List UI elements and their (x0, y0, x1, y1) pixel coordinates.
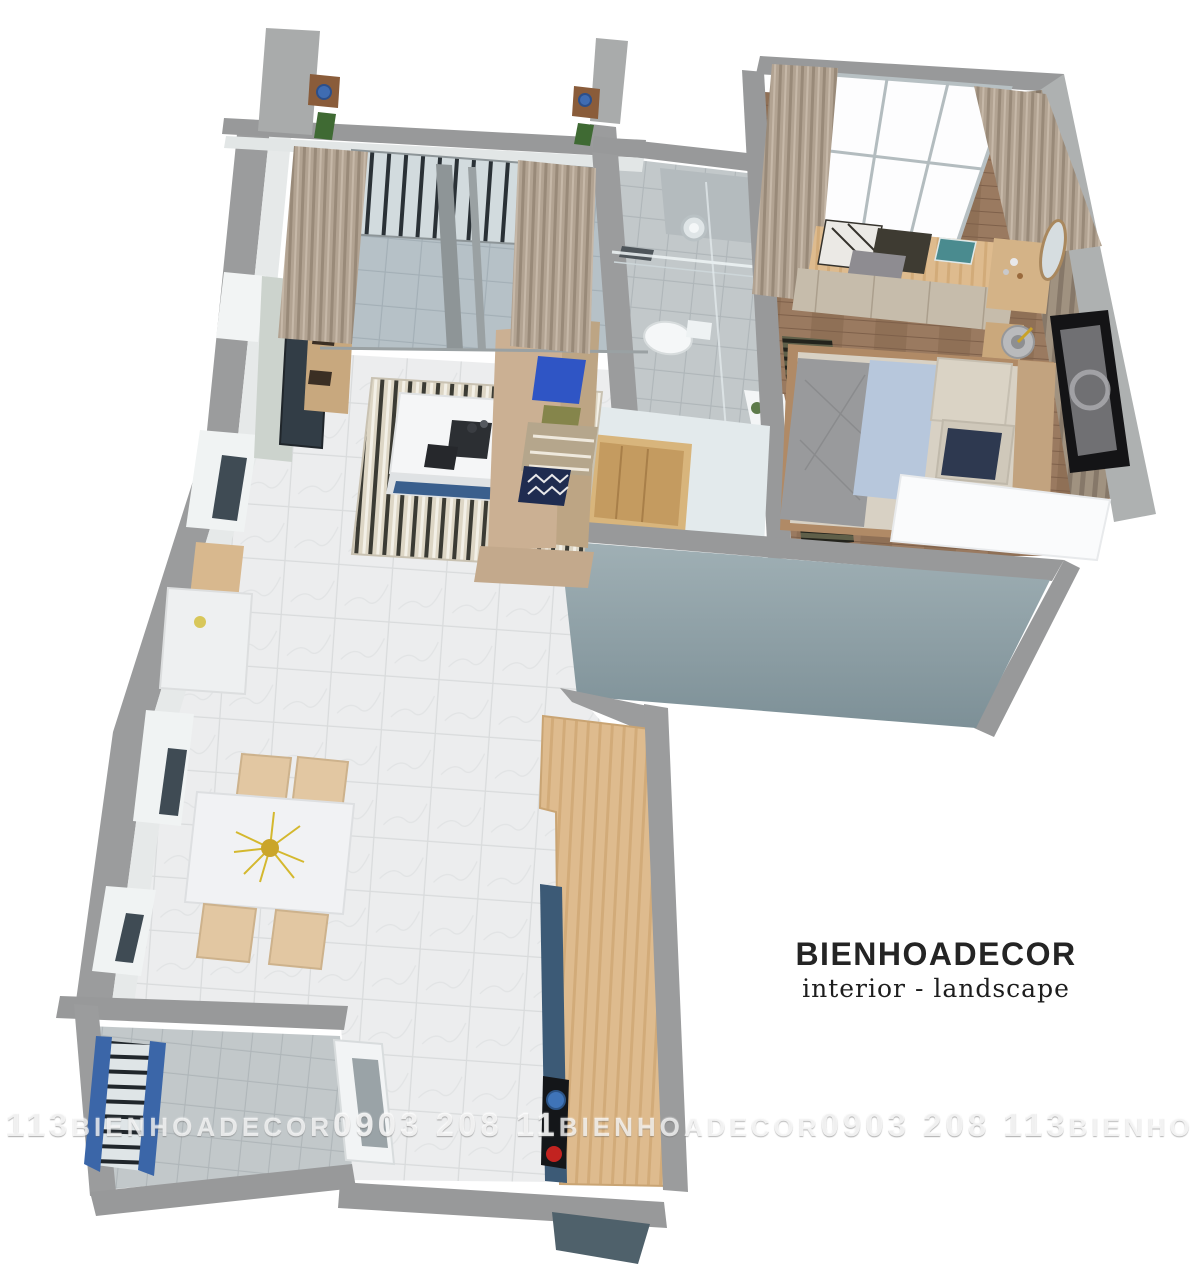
watermark-segment: BIENHOADECOR (71, 1112, 333, 1143)
shelf-slot (308, 370, 332, 386)
bed-pillow-1 (931, 358, 1012, 426)
nook-plant (194, 616, 206, 628)
bedside-lamp (1002, 326, 1034, 358)
pillow-blue (532, 356, 586, 404)
toilet-tank (686, 320, 712, 340)
flower-center (261, 839, 279, 857)
nook-table (160, 588, 252, 694)
watermark-segment: BIENHOADECOR (559, 1112, 821, 1143)
bedroom (742, 56, 1156, 560)
wall-stub-left (258, 28, 340, 140)
watermark-segment: BIENHOADECOR (1069, 1112, 1191, 1143)
watermark-segment: 0903 208 11 (333, 1106, 559, 1144)
brand-name: BIENHOADECOR (770, 938, 1102, 972)
mirror-center (689, 223, 699, 233)
watermark-segment: 0903 208 113 (821, 1106, 1069, 1144)
bottle (480, 420, 488, 428)
cosmetic-bottle (1003, 269, 1009, 275)
blue-pot (317, 85, 331, 99)
dining-chair (269, 910, 328, 969)
dining-chair (197, 904, 256, 962)
blue-pot (579, 94, 591, 106)
bed-pillow-navy (941, 428, 1002, 480)
brand-logo: BIENHOADECOR interior - landscape (770, 938, 1102, 1003)
wood-door (594, 442, 684, 526)
floor-plan-render (0, 0, 1191, 1280)
bottle (467, 423, 477, 433)
watermark-segment: 113 (6, 1106, 71, 1144)
pillow-navy (518, 466, 571, 506)
books (424, 444, 458, 470)
seat-book (935, 238, 976, 264)
brand-tagline: interior - landscape (770, 974, 1102, 1003)
sofa-chaise (474, 546, 594, 588)
cosmetic-bottle (1010, 258, 1018, 266)
upper-cabinet (216, 272, 266, 342)
watermark-strip: 113 BIENHOADECOR 0903 208 11 BIENHOADECO… (6, 1106, 1191, 1152)
cosmetic-bottle (1017, 273, 1023, 279)
curtain-right (510, 160, 596, 354)
